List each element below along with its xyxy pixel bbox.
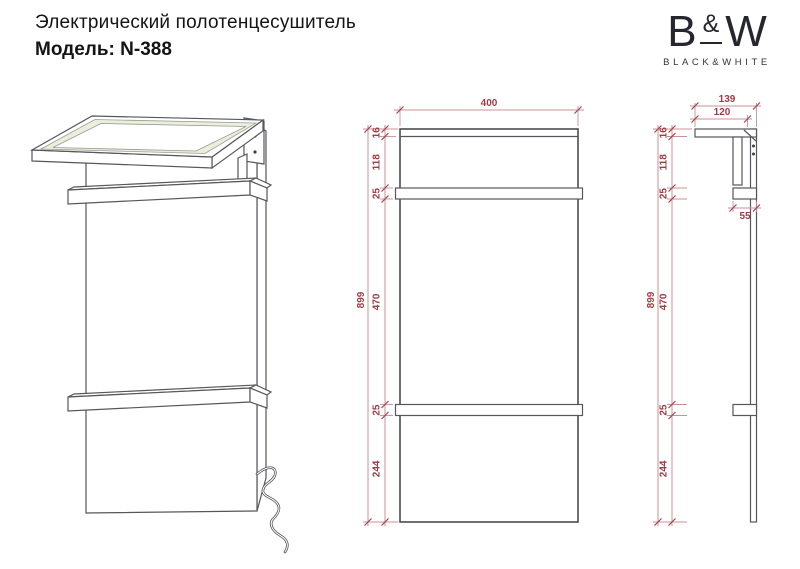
dimension-depths: 139 120 bbox=[690, 94, 761, 127]
side-view: 139 120 55 899 bbox=[646, 94, 761, 526]
front-view: 400 899 16 118 25 470 bbox=[356, 98, 584, 526]
dimension-heights: 899 16 118 25 470 25 244 bbox=[646, 125, 692, 526]
dim-label-seg: 25 bbox=[372, 188, 383, 200]
dim-label-total-depth: 139 bbox=[719, 94, 736, 105]
technical-drawing-canvas: 400 899 16 118 25 470 bbox=[0, 0, 800, 569]
towel-rail-upper-profile bbox=[733, 188, 757, 199]
dim-label-seg: 470 bbox=[372, 293, 383, 310]
shelf-support-profile bbox=[733, 137, 742, 185]
towel-rail-lower-profile bbox=[733, 405, 757, 416]
screw-icon bbox=[253, 150, 256, 153]
screw-icon bbox=[752, 153, 755, 156]
dim-label-width: 400 bbox=[481, 98, 498, 109]
dim-label-seg: 16 bbox=[659, 127, 670, 139]
dim-label-seg: 244 bbox=[372, 460, 383, 477]
dim-label-seg: 25 bbox=[372, 404, 383, 416]
towel-rail-lower bbox=[396, 405, 583, 416]
dim-label-seg: 25 bbox=[659, 404, 670, 416]
dim-label-seg: 470 bbox=[659, 293, 670, 310]
dimension-heights: 899 16 118 25 470 25 244 bbox=[356, 125, 398, 526]
dim-label-seg: 16 bbox=[372, 127, 383, 139]
dim-label-seg: 25 bbox=[659, 188, 670, 200]
dim-label-total-height: 899 bbox=[646, 291, 657, 308]
dimension-width: 400 bbox=[394, 98, 584, 126]
dim-label-rail-depth: 55 bbox=[739, 211, 751, 222]
dim-label-shelf-depth: 120 bbox=[714, 107, 731, 118]
dim-label-total-height: 899 bbox=[356, 291, 367, 308]
towel-rail-upper bbox=[396, 188, 583, 199]
dim-label-seg: 118 bbox=[372, 154, 383, 171]
screw-icon bbox=[752, 145, 755, 148]
dim-label-seg: 244 bbox=[659, 460, 670, 477]
isometric-view bbox=[32, 116, 287, 552]
dim-label-seg: 118 bbox=[659, 154, 670, 171]
